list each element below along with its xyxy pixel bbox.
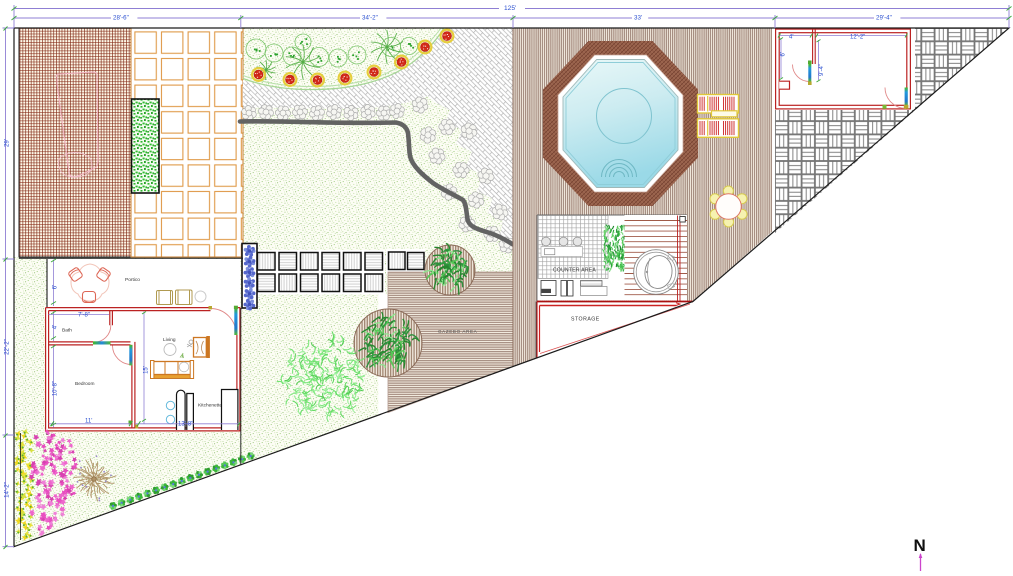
svg-text:GAZEBO AREA: GAZEBO AREA [438,329,478,334]
svg-text:6': 6' [53,285,59,289]
svg-text:29'-4": 29'-4" [876,15,892,22]
svg-text:33': 33' [634,15,642,22]
svg-text:Kitchenette: Kitchenette [198,403,222,409]
svg-text:13'-8": 13'-8" [178,422,193,428]
svg-text:9'-4": 9'-4" [819,64,825,76]
svg-text:STORAGE: STORAGE [571,317,600,323]
svg-text:22'-2": 22'-2" [4,339,11,355]
svg-text:34'-2": 34'-2" [362,15,378,22]
svg-text:4': 4' [789,35,793,41]
svg-text:N: N [914,536,926,555]
svg-text:125': 125' [504,5,516,12]
svg-text:28'-6": 28'-6" [113,15,129,22]
svg-text:Bedroom: Bedroom [75,381,94,387]
svg-text:10'-8": 10'-8" [53,381,59,396]
svg-text:COUNTER AREA: COUNTER AREA [553,268,596,274]
svg-text:15': 15' [144,366,150,374]
svg-text:12'-2": 12'-2" [850,35,865,41]
svg-text:6': 6' [781,52,787,56]
svg-text:Living: Living [163,337,176,343]
svg-text:Bath: Bath [62,328,72,334]
svg-text:Portico: Portico [125,277,140,283]
svg-text:4': 4' [53,325,59,329]
svg-text:29': 29' [4,139,11,147]
svg-text:14'-2": 14'-2" [4,482,11,498]
svg-text:11': 11' [85,419,92,425]
svg-text:7'-8": 7'-8" [78,313,90,319]
